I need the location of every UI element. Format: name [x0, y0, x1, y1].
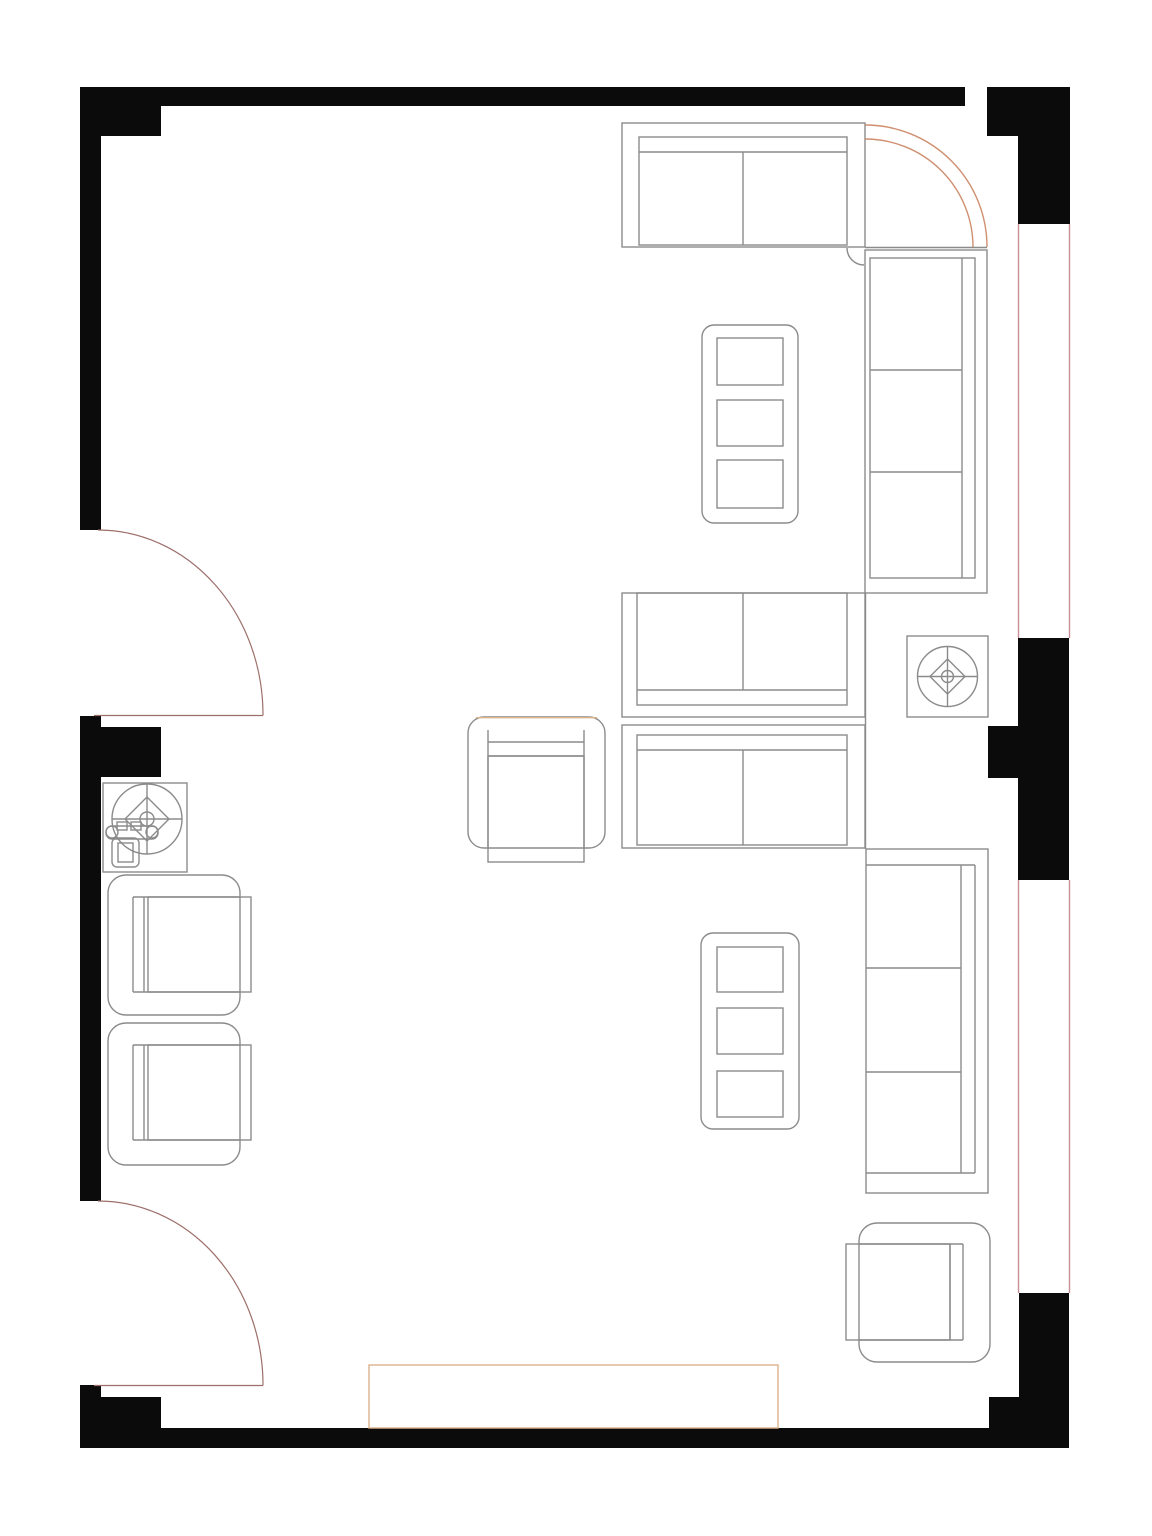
- coffee-table-upper: [702, 325, 798, 523]
- armchair-bottom-right: [846, 1223, 990, 1362]
- coffee-table-upper-part: [717, 460, 783, 508]
- coffee-table-lower-part: [717, 1008, 783, 1054]
- coffee-table-lower-part: [717, 947, 783, 992]
- armchair-center-part: [488, 756, 584, 862]
- armchair-left-lower: [108, 1023, 251, 1165]
- door-left-lower: [94, 1201, 263, 1386]
- door-left-upper-swing-arc: [98, 530, 263, 716]
- corner-sectional-curve-part: [865, 125, 987, 247]
- wall-bottom-band: [80, 1428, 1069, 1448]
- wall-bottom-right-step: [989, 1397, 1019, 1428]
- loveseat-middle-upper: [622, 593, 865, 717]
- coffee-table-lower: [701, 933, 799, 1129]
- loveseat-middle-lower: [622, 725, 865, 848]
- corner-sectional-curve-part: [847, 248, 864, 265]
- armchair-left-upper: [108, 875, 251, 1015]
- ceiling-fan-right: [907, 636, 988, 717]
- coffee-table-upper-part: [717, 400, 783, 446]
- sofa-right-upper-three-seat: [865, 250, 987, 593]
- door-left-upper: [94, 530, 263, 716]
- armchair-center: [468, 717, 605, 862]
- door-left-lower-swing-arc: [98, 1201, 263, 1386]
- armchair-left-lower-part: [148, 1045, 251, 1140]
- coffee-table-upper-part: [717, 338, 783, 385]
- wall-bottom-right-column: [1019, 1293, 1069, 1448]
- floor-plan-drawing: [0, 0, 1152, 1536]
- corner-sectional-curve: [847, 125, 987, 265]
- coffee-table-lower-part: [717, 1071, 783, 1117]
- sofa-right-upper-three-seat-part: [865, 250, 987, 593]
- sofa-right-lower-three-seat: [866, 849, 988, 1193]
- wall-top-right-block: [987, 87, 1070, 136]
- loveseat-middle-upper-part: [637, 593, 847, 705]
- wall-right-middle-pier: [988, 726, 1018, 778]
- wall-bottom-left-step: [99, 1397, 161, 1428]
- corner-sectional-curve-part: [865, 139, 973, 247]
- wall-left-middle-block: [99, 727, 161, 777]
- sofa-right-lower-three-seat-part: [866, 849, 988, 1193]
- coffee-table-lower-part: [701, 933, 799, 1129]
- furniture-layer: [103, 123, 990, 1428]
- wall-top-right-column: [1018, 136, 1070, 224]
- doors-layer: [94, 530, 263, 1386]
- rug-bottom-part: [369, 1365, 778, 1428]
- sofa-top-two-seat: [622, 123, 865, 247]
- wall-right-middle-block: [1018, 638, 1069, 880]
- wall-left-upper-column: [80, 87, 101, 530]
- loveseat-middle-lower-part: [637, 735, 847, 845]
- wall-left-middle-column: [80, 716, 101, 1201]
- rug-bottom: [369, 1365, 778, 1428]
- wall-top-band: [80, 87, 965, 106]
- floor-plan-canvas: [0, 0, 1152, 1536]
- sofa-right-upper-three-seat-part: [870, 258, 975, 578]
- armchair-bottom-right-part: [846, 1244, 950, 1340]
- armchair-left-upper-part: [108, 875, 240, 1015]
- armchair-left-upper-part: [148, 897, 251, 992]
